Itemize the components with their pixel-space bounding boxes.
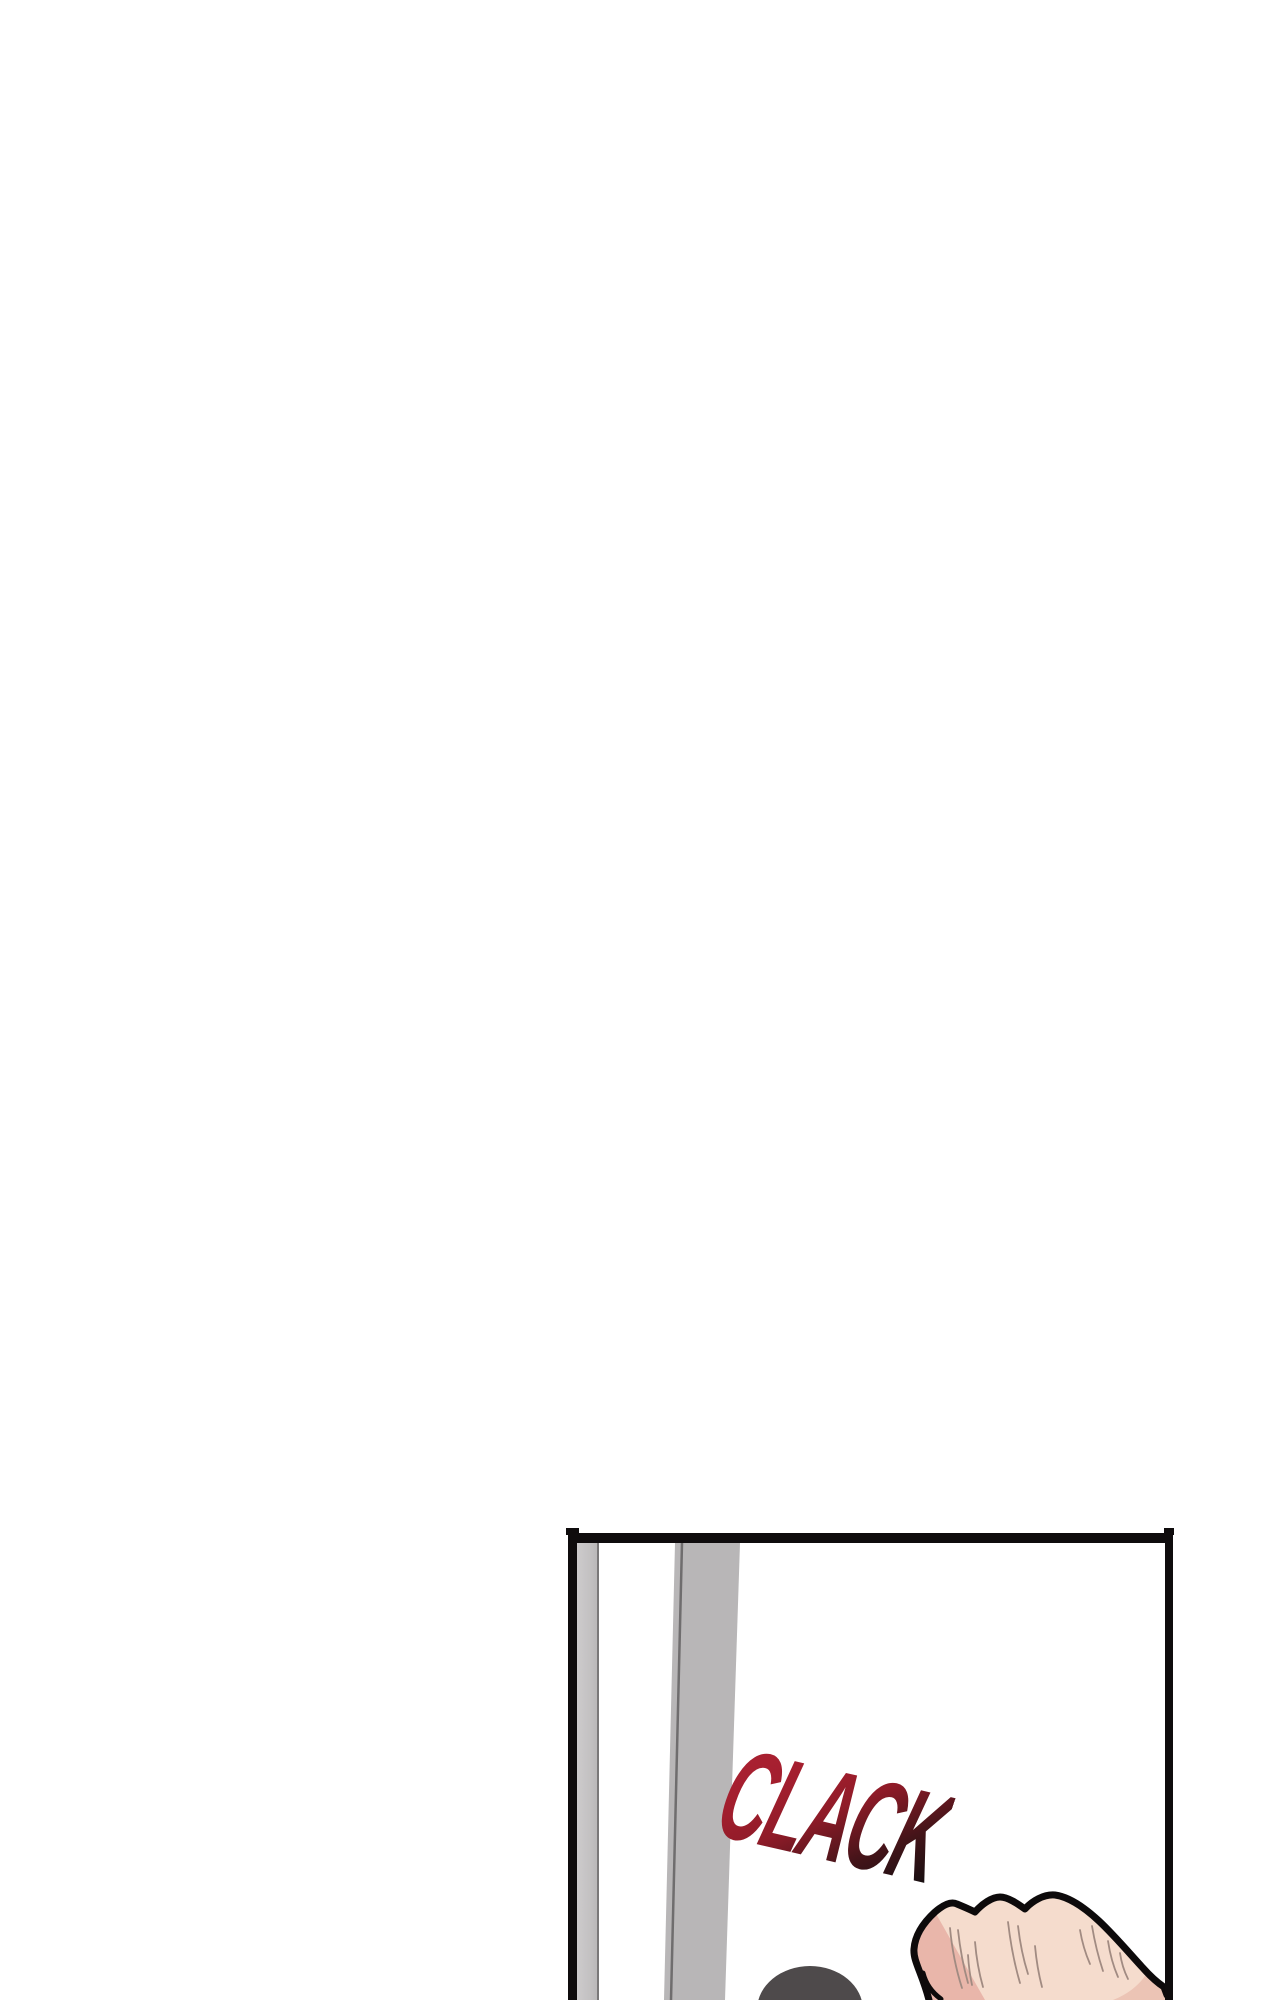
head-top	[757, 1966, 863, 2000]
webtoon-page: CLACK	[0, 0, 1280, 2000]
comic-panel: CLACK	[568, 1533, 1173, 2000]
